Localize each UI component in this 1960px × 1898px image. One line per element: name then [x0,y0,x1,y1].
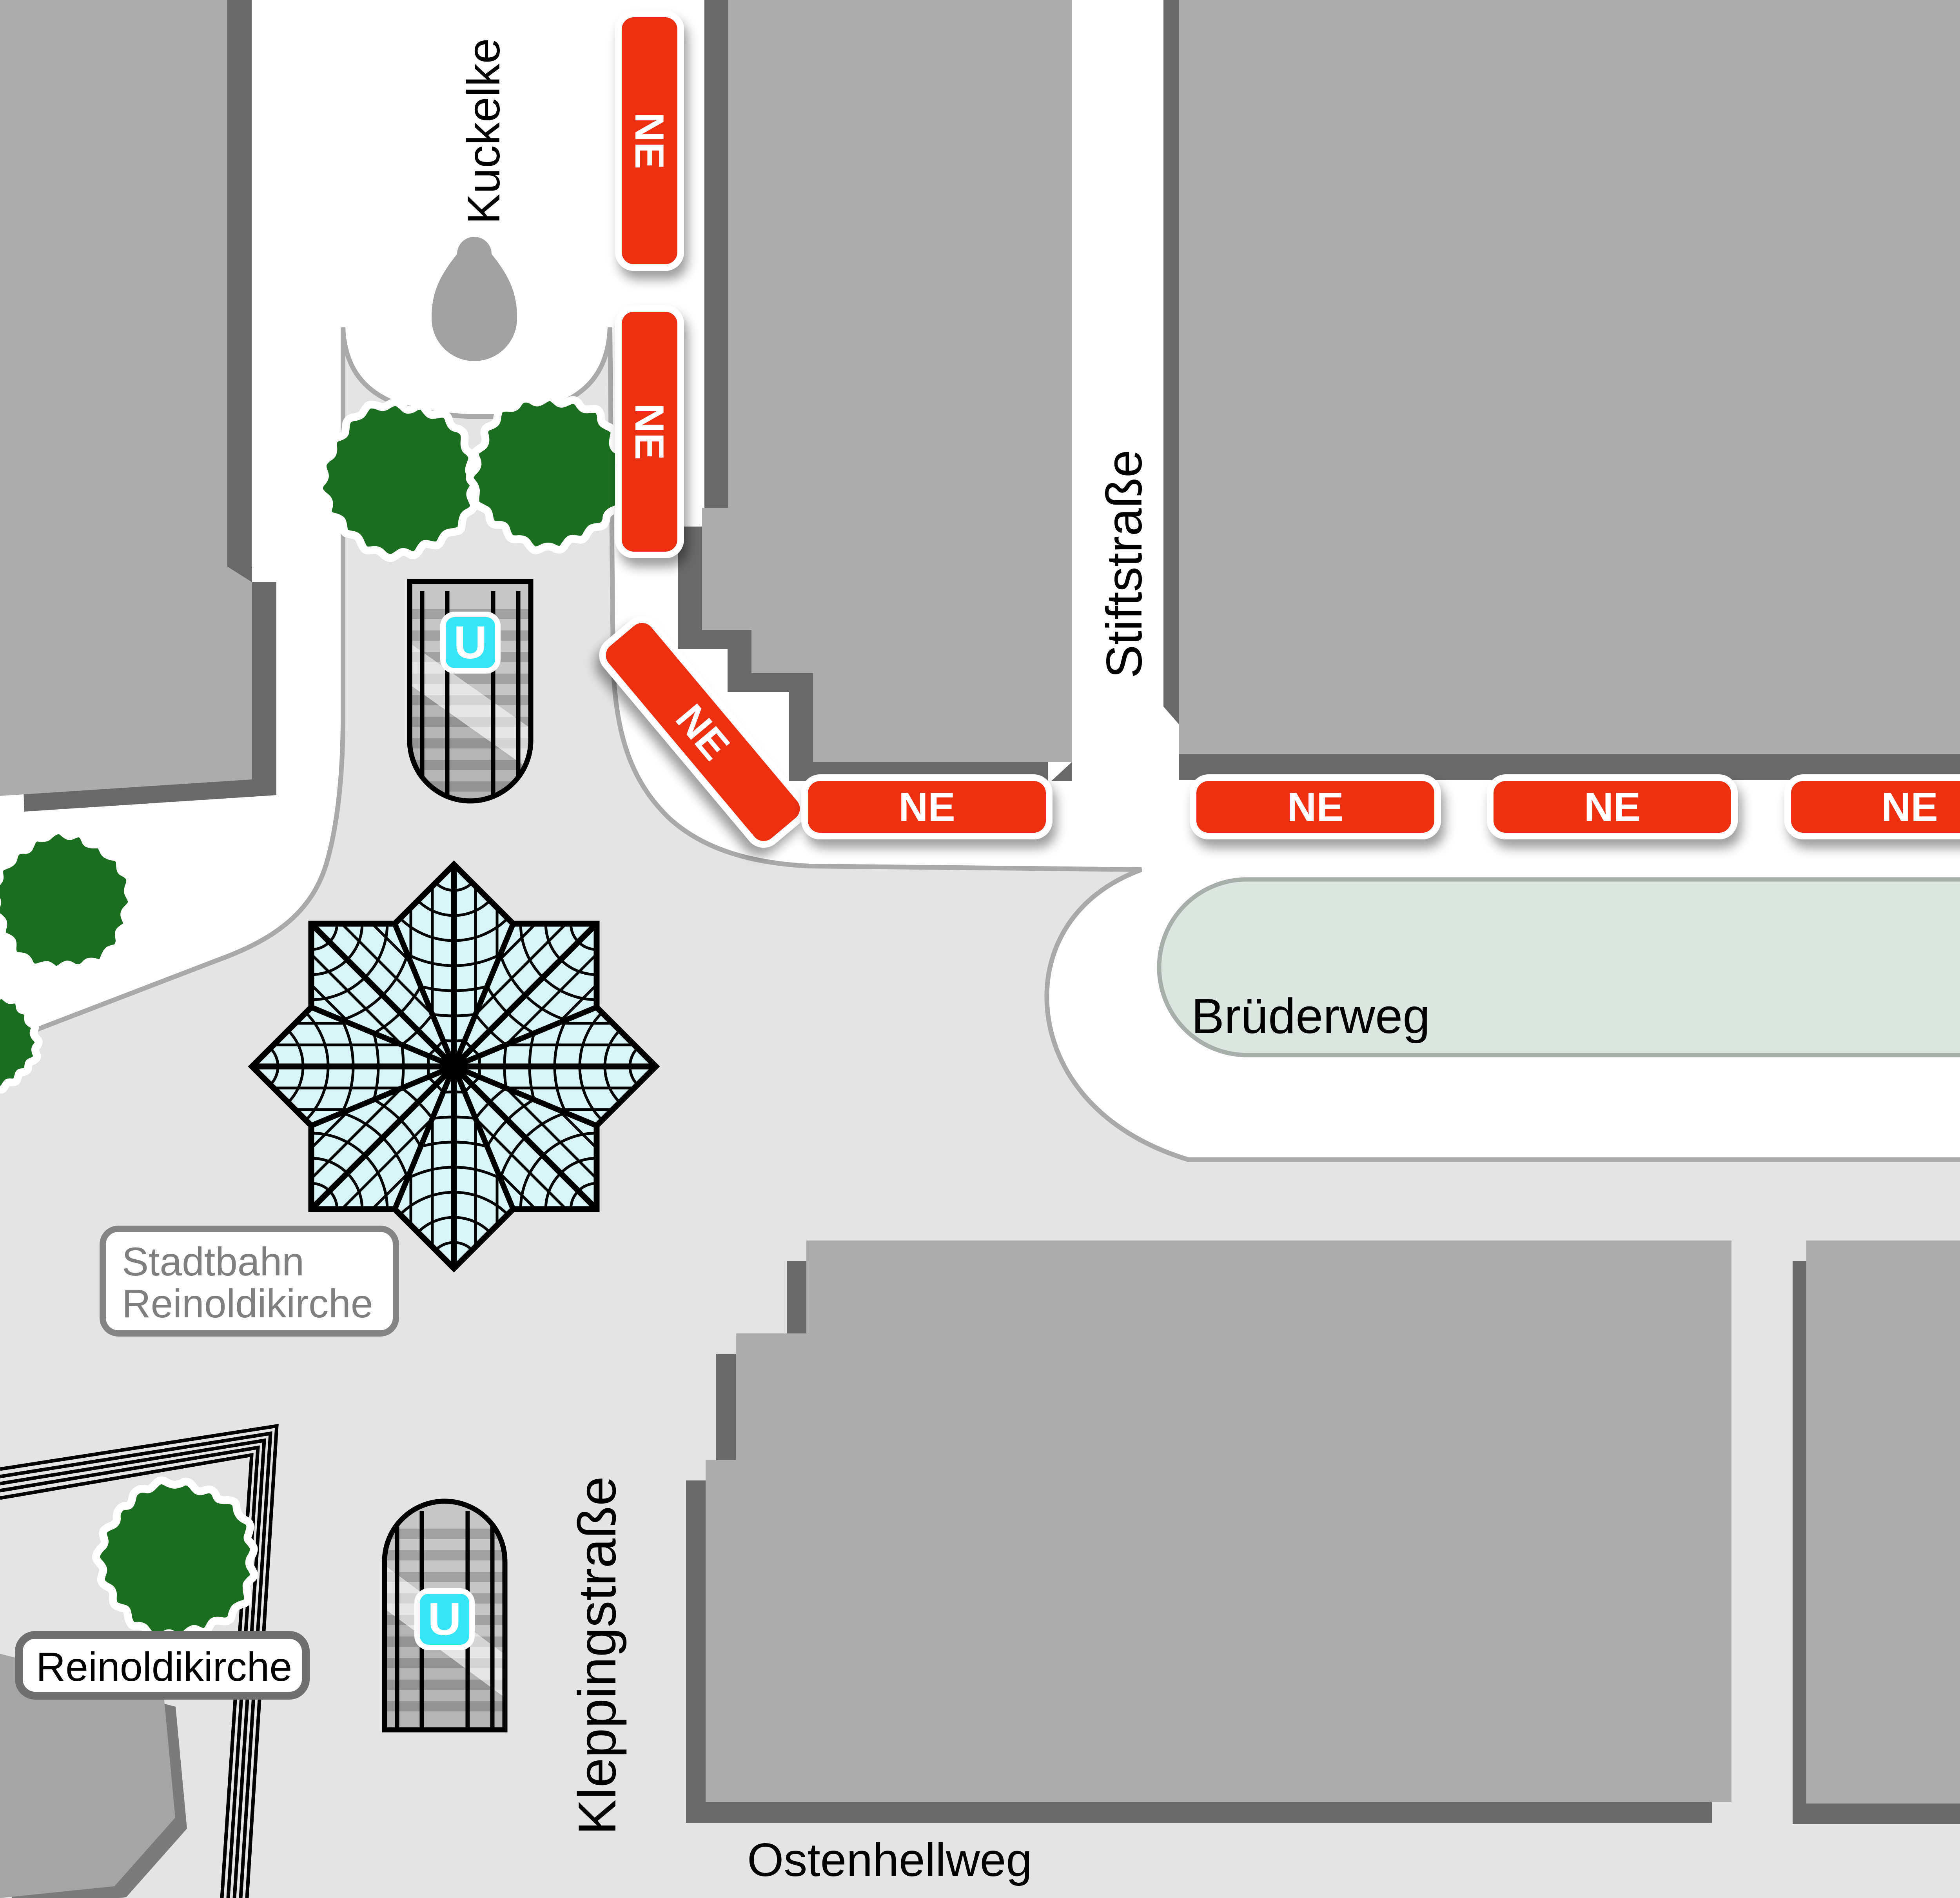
svg-text:Brüderweg: Brüderweg [1191,988,1430,1044]
svg-text:NE: NE [626,113,672,169]
svg-text:Stadtbahn: Stadtbahn [122,1239,304,1284]
svg-text:NE: NE [1287,785,1343,830]
svg-text:Ostenhellweg: Ostenhellweg [747,1834,1032,1886]
svg-text:NE: NE [1584,785,1641,830]
svg-text:Reinoldikirche: Reinoldikirche [36,1644,292,1690]
svg-text:NE: NE [626,403,672,460]
svg-text:U: U [428,1593,461,1645]
svg-text:Kleppingstraße: Kleppingstraße [567,1476,627,1835]
svg-text:NE: NE [898,785,955,830]
svg-text:Reinoldikirche: Reinoldikirche [122,1281,373,1326]
svg-text:Stiftstraße: Stiftstraße [1096,450,1152,678]
svg-text:Kuckelke: Kuckelke [458,38,509,224]
svg-text:NE: NE [1881,785,1938,830]
svg-text:U: U [454,617,487,668]
